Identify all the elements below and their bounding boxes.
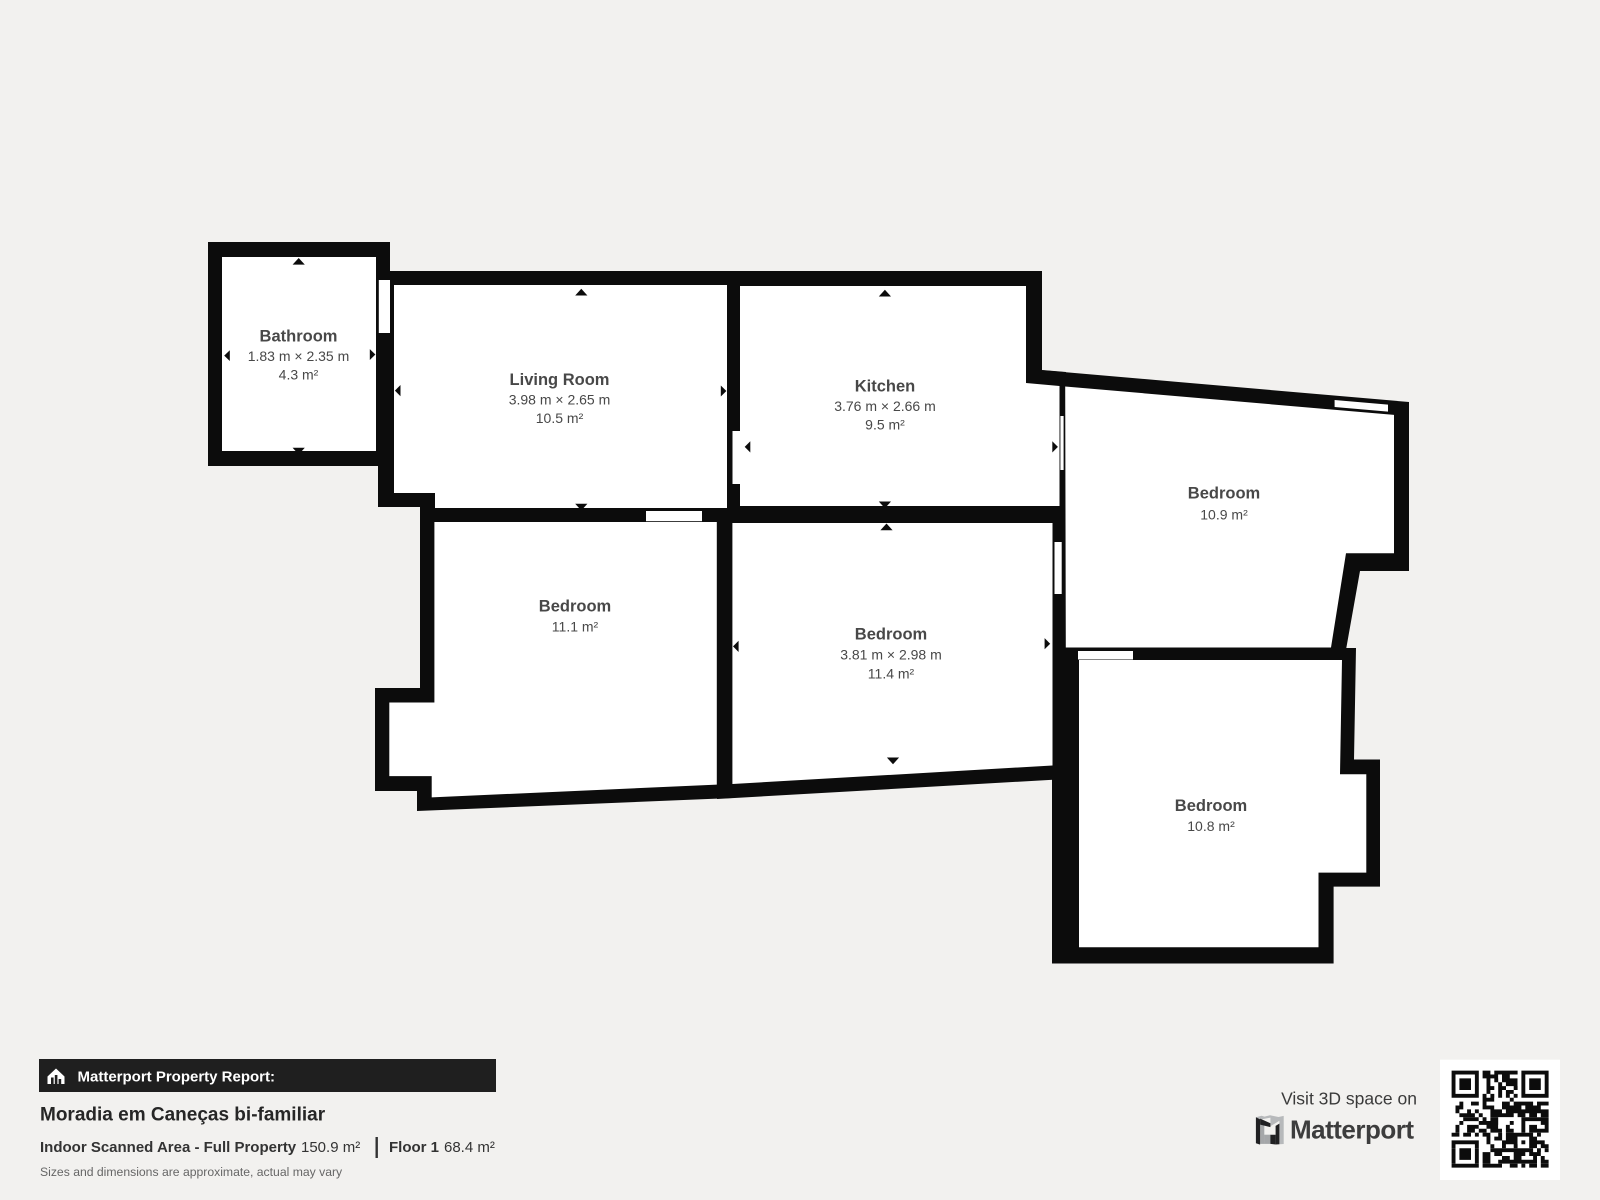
svg-text:9.5 m²: 9.5 m² xyxy=(865,417,905,433)
svg-text:4.3 m²: 4.3 m² xyxy=(279,367,319,383)
svg-text:1.83 m × 2.35 m: 1.83 m × 2.35 m xyxy=(248,348,350,364)
svg-text:10.9 m²: 10.9 m² xyxy=(1200,507,1248,523)
svg-text:68.4 m²: 68.4 m² xyxy=(444,1139,495,1156)
svg-text:Bathroom: Bathroom xyxy=(260,328,338,346)
svg-text:Bedroom: Bedroom xyxy=(1188,485,1260,503)
svg-text:Sizes and dimensions are appro: Sizes and dimensions are approximate, ac… xyxy=(40,1165,343,1179)
svg-text:3.98 m × 2.65 m: 3.98 m × 2.65 m xyxy=(509,392,611,408)
svg-text:Matterport Property Report:: Matterport Property Report: xyxy=(78,1069,276,1086)
svg-text:Floor 1: Floor 1 xyxy=(389,1139,439,1156)
svg-text:Bedroom: Bedroom xyxy=(539,598,611,616)
svg-text:150.9 m²: 150.9 m² xyxy=(301,1139,360,1156)
svg-text:Indoor Scanned Area - Full Pro: Indoor Scanned Area - Full Property xyxy=(40,1139,297,1156)
svg-text:Kitchen: Kitchen xyxy=(855,378,916,396)
svg-text:11.4 m²: 11.4 m² xyxy=(868,666,915,682)
svg-text:Bedroom: Bedroom xyxy=(855,626,927,644)
svg-text:3.76 m × 2.66 m: 3.76 m × 2.66 m xyxy=(834,398,936,414)
svg-text:Bedroom: Bedroom xyxy=(1175,797,1247,815)
svg-text:10.5 m²: 10.5 m² xyxy=(536,410,584,426)
svg-text:Visit 3D space on: Visit 3D space on xyxy=(1281,1089,1417,1109)
svg-text:Living Room: Living Room xyxy=(510,371,610,389)
svg-text:10.8 m²: 10.8 m² xyxy=(1187,818,1235,834)
svg-text:3.81 m × 2.98 m: 3.81 m × 2.98 m xyxy=(840,647,942,663)
svg-text:Moradia em Caneças bi-familiar: Moradia em Caneças bi-familiar xyxy=(40,1105,326,1126)
svg-text:11.1 m²: 11.1 m² xyxy=(552,619,599,635)
svg-text:Matterport: Matterport xyxy=(1290,1115,1414,1145)
